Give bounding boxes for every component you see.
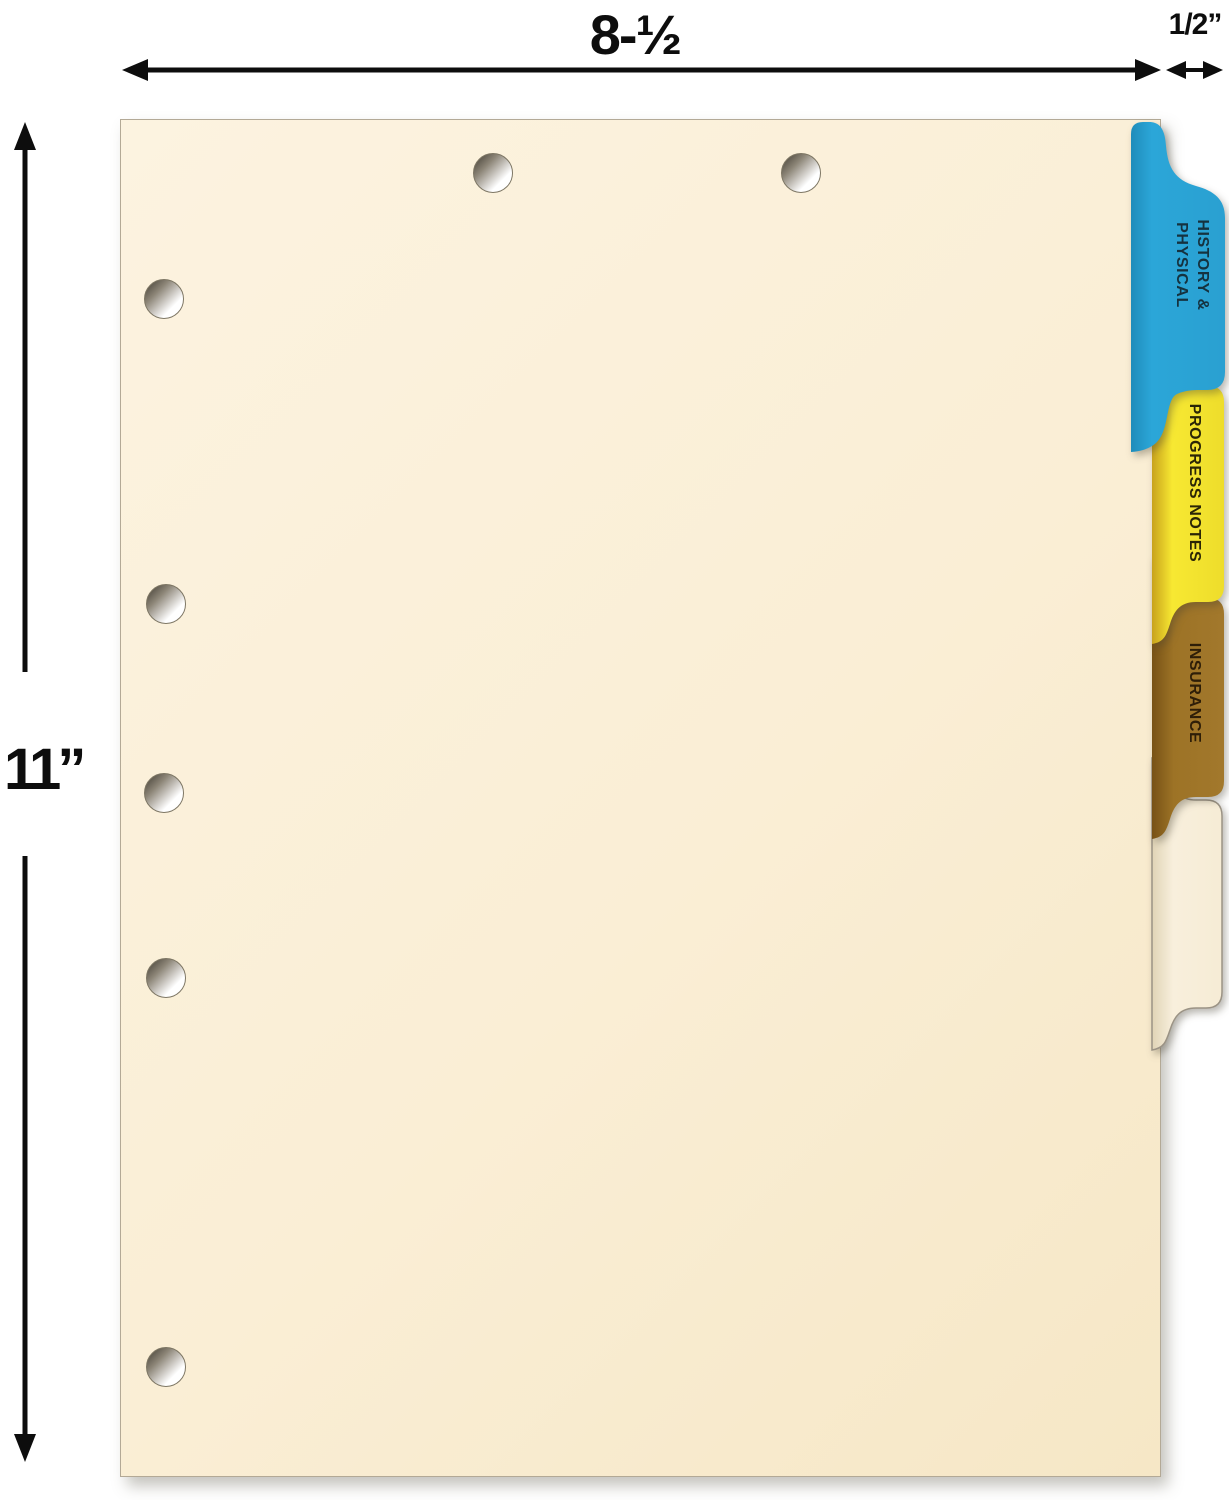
tab-label-history-line2: PHYSICAL	[1171, 200, 1192, 330]
tab-label-history-line1: HISTORY &	[1192, 200, 1213, 330]
tab-label-progress-notes: PROGRESS NOTES	[1184, 391, 1204, 575]
product-diagram: 8-½ 1/2” 11”	[0, 0, 1229, 1500]
tab-label-history-physical: HISTORY & PHYSICAL	[1169, 200, 1213, 330]
tab-bank	[0, 0, 1229, 1500]
tab-label-insurance: INSURANCE	[1184, 623, 1204, 763]
